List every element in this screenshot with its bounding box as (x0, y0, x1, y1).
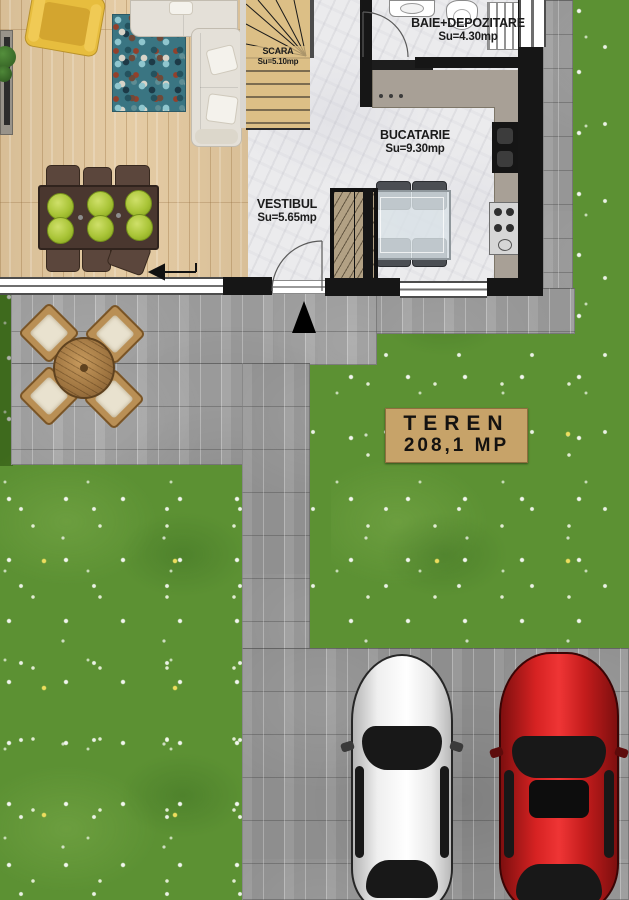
rear-window (516, 864, 602, 900)
plate (47, 217, 74, 244)
side-window (355, 766, 364, 858)
room-label-scara: SCARA Su=5.10mp (246, 46, 310, 66)
wall (325, 278, 400, 296)
windshield (362, 726, 442, 770)
white-car (344, 654, 460, 900)
teren-sign: TEREN 208,1 MP (385, 408, 528, 463)
plate (47, 193, 74, 220)
kitchen-window (400, 281, 487, 298)
floor-plan: TEREN 208,1 MP (0, 0, 629, 900)
room-name: VESTIBUL (217, 197, 357, 212)
sofa-side-section (191, 28, 242, 147)
kitchen-counter (372, 70, 519, 108)
plate (87, 191, 114, 218)
room-name: SCARA (246, 46, 310, 57)
windshield (512, 736, 606, 778)
living-room-window (0, 277, 223, 295)
entrance-door-opening (272, 280, 327, 294)
room-name: BUCATARIE (335, 128, 495, 143)
room-name: BAIE+DEPOZITARE (388, 16, 548, 31)
wall (223, 277, 272, 295)
plate (125, 190, 152, 217)
teren-sign-title: TEREN (386, 412, 527, 436)
sink (389, 0, 435, 17)
room-area: Su=5.65mp (217, 212, 357, 226)
teren-sign-area: 208,1 MP (386, 435, 527, 457)
gas-hob (489, 202, 520, 255)
plate (87, 215, 114, 242)
room-area: Su=5.10mp (246, 57, 310, 66)
side-walkway (543, 0, 573, 300)
staircase: SCARA Su=5.10mp (246, 0, 310, 130)
rear-window (366, 860, 438, 898)
wall (415, 57, 518, 68)
oven (492, 122, 518, 173)
plate (126, 214, 153, 241)
patio-table (53, 337, 115, 399)
stair-wall (310, 0, 314, 58)
room-label-baie: BAIE+DEPOZITARE Su=4.30mp (388, 16, 548, 44)
room-area: Su=9.30mp (335, 143, 495, 157)
room-label-vestibul: VESTIBUL Su=5.65mp (217, 197, 357, 225)
sunroof (529, 780, 589, 818)
wall (360, 0, 372, 107)
room-label-bucatarie: BUCATARIE Su=9.30mp (335, 128, 495, 156)
red-car (492, 652, 626, 900)
kitchen-table (373, 190, 451, 260)
side-window (440, 766, 449, 858)
side-window (604, 770, 614, 858)
wall (363, 188, 373, 280)
room-area: Su=4.30mp (388, 31, 548, 45)
side-window (504, 770, 514, 858)
